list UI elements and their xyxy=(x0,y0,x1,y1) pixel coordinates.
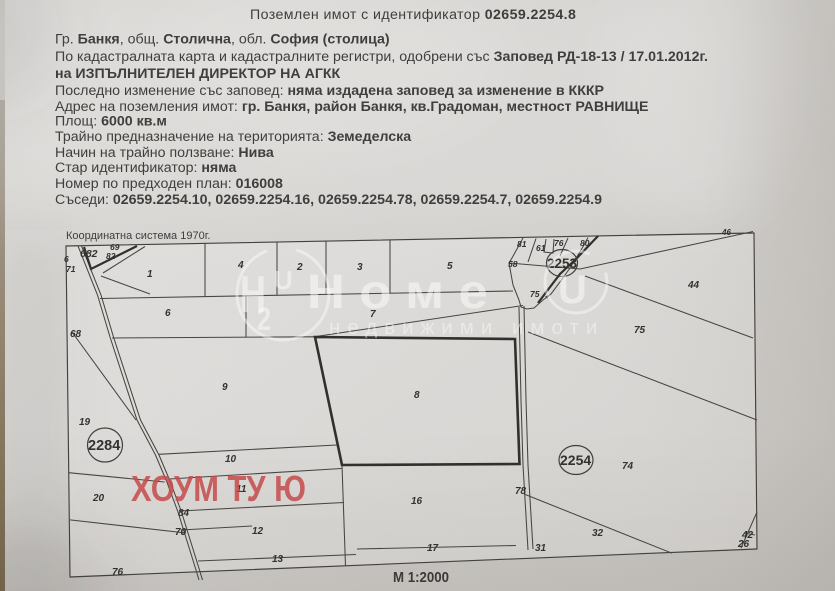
svg-text:М 1:2000: М 1:2000 xyxy=(393,570,449,586)
